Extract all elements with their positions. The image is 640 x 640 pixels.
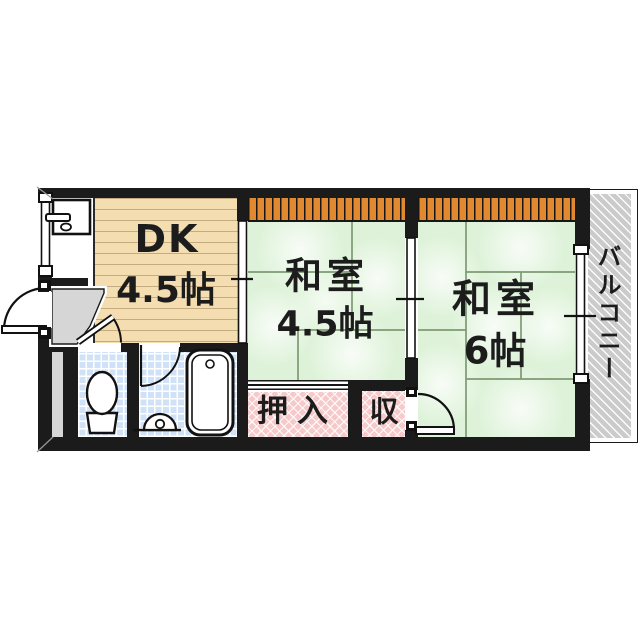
- storage-door-icon: [405, 387, 454, 434]
- bathtub-icon: [187, 350, 233, 435]
- washing-drain-icon: [133, 414, 181, 430]
- kitchen-sink-icon: [46, 200, 90, 234]
- bath-door-icon: [141, 345, 180, 386]
- room-dk-label: DK: [135, 220, 200, 258]
- floor-plan: DK 4.5帖 和室 4.5帖 和室 6帖 押入 収 バルコニー: [0, 0, 640, 640]
- room-washitsu6-label: 和室: [452, 281, 540, 320]
- room-washitsu45-size: 4.5帖: [276, 308, 373, 343]
- room-storage-label: 収: [369, 398, 398, 427]
- room-oshiire-label: 押入: [257, 397, 337, 428]
- room-washitsu6-size: 6帖: [464, 333, 527, 370]
- sliding-partition-dk-icon: [231, 221, 253, 343]
- toilet-icon: [87, 372, 117, 433]
- entrance-door-icon: [2, 280, 52, 339]
- room-washitsu45-label: 和室: [285, 258, 369, 295]
- sliding-partition-washitsu-icon: [396, 238, 424, 358]
- window-right-icon: [564, 245, 596, 383]
- tatami-lines-washitsu45: [248, 222, 405, 380]
- genkan-floor: [52, 289, 104, 344]
- room-dk-size: 4.5帖: [116, 273, 216, 309]
- window-left-icon: [39, 193, 52, 276]
- balcony-label: バルコニー: [595, 244, 619, 384]
